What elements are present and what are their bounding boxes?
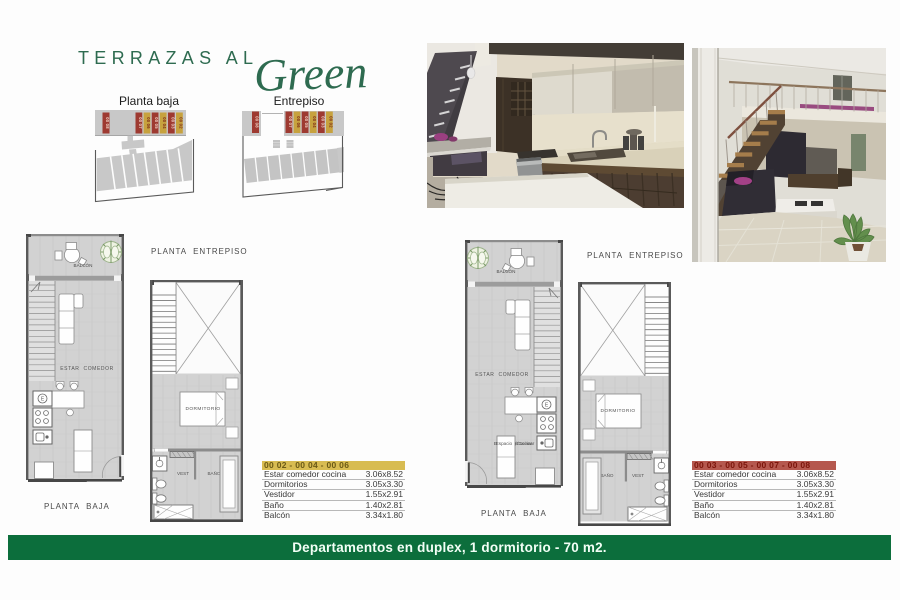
svg-text:00 04: 00 04 <box>312 116 317 128</box>
svg-text:ESTAR COMEDOR: ESTAR COMEDOR <box>475 372 529 378</box>
svg-text:00 08: 00 08 <box>255 116 260 128</box>
svg-text:BALCÓN: BALCÓN <box>74 262 93 268</box>
svg-text:00 07: 00 07 <box>138 117 143 129</box>
svg-text:DORMITORIO: DORMITORIO <box>600 408 635 414</box>
svg-text:BAÑO: BAÑO <box>207 470 220 476</box>
svg-text:VEST: VEST <box>632 473 644 478</box>
svg-text:00 08: 00 08 <box>105 117 110 129</box>
svg-text:00 06: 00 06 <box>296 116 301 128</box>
svg-text:00 03: 00 03 <box>170 117 175 129</box>
svg-text:BAÑO: BAÑO <box>600 472 613 478</box>
svg-text:BALCÓN: BALCÓN <box>497 268 516 274</box>
svg-text:ESTAR COMEDOR: ESTAR COMEDOR <box>60 366 114 372</box>
svg-text:DORMITORIO: DORMITORIO <box>185 406 220 412</box>
svg-text:00 07: 00 07 <box>288 116 293 128</box>
svg-text:00 06: 00 06 <box>146 117 151 129</box>
svg-text:00 05: 00 05 <box>304 116 309 128</box>
svg-text:00 02: 00 02 <box>328 116 333 128</box>
svg-text:00 05: 00 05 <box>154 117 159 129</box>
svg-text:00 02: 00 02 <box>178 117 183 129</box>
svg-text:00 03: 00 03 <box>320 116 325 128</box>
svg-text:00 04: 00 04 <box>162 117 167 129</box>
svg-text:Espacio p/Cocinar: Espacio p/Cocinar <box>496 441 535 446</box>
svg-text:VEST: VEST <box>177 471 189 476</box>
